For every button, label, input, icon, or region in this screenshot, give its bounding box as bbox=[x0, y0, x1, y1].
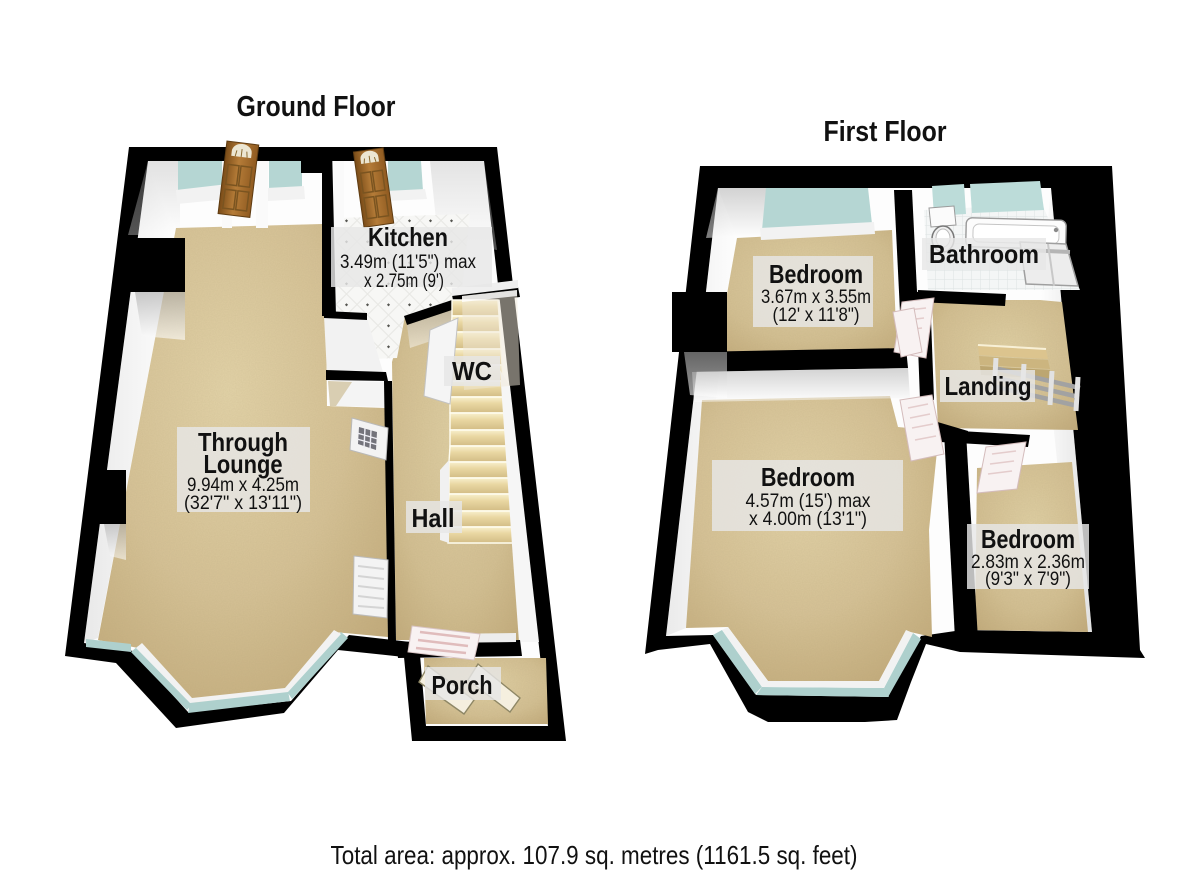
svg-text:(12' x 11'8"): (12' x 11'8") bbox=[773, 305, 860, 326]
svg-text:WC: WC bbox=[452, 356, 492, 386]
svg-text:Porch: Porch bbox=[432, 670, 493, 700]
svg-text:Landing: Landing bbox=[945, 371, 1032, 401]
svg-text:First Floor: First Floor bbox=[824, 116, 947, 148]
svg-text:Ground Floor: Ground Floor bbox=[237, 91, 396, 123]
svg-text:Bedroom: Bedroom bbox=[769, 259, 863, 289]
svg-text:(9'3" x 7'9"): (9'3" x 7'9") bbox=[985, 569, 1071, 590]
svg-text:3.49m (11'5") max: 3.49m (11'5") max bbox=[340, 252, 476, 273]
svg-text:(32'7" x 13'11"): (32'7" x 13'11") bbox=[184, 493, 302, 514]
svg-text:Total area: approx. 107.9 sq.: Total area: approx. 107.9 sq. metres (11… bbox=[331, 840, 858, 870]
svg-text:Bedroom: Bedroom bbox=[761, 462, 855, 492]
svg-text:Bedroom: Bedroom bbox=[981, 524, 1075, 554]
svg-text:Kitchen: Kitchen bbox=[368, 222, 448, 252]
svg-text:x 2.75m (9'): x 2.75m (9') bbox=[364, 271, 444, 292]
svg-text:Bathroom: Bathroom bbox=[929, 239, 1039, 269]
svg-text:Hall: Hall bbox=[412, 503, 455, 533]
svg-text:x 4.00m (13'1"): x 4.00m (13'1") bbox=[749, 509, 867, 530]
